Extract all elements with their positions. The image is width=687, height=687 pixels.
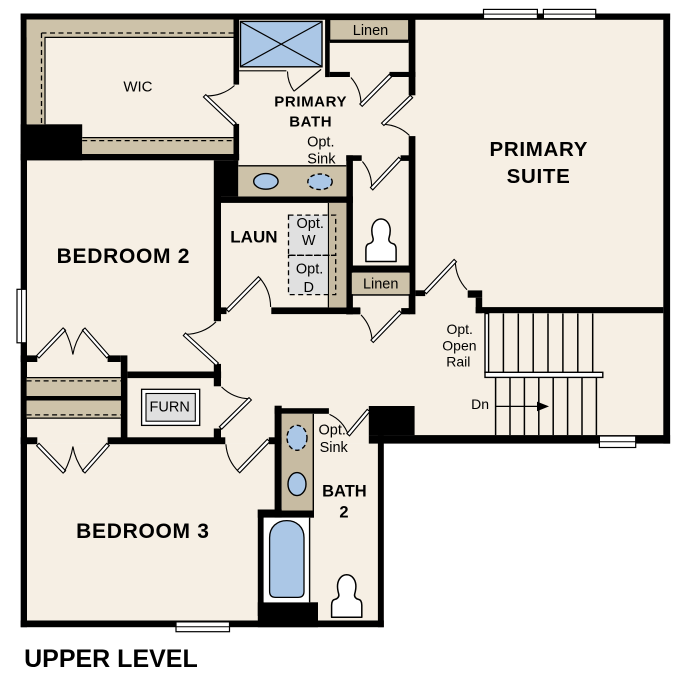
svg-text:WIC: WIC: [123, 78, 152, 95]
svg-text:LAUN: LAUN: [230, 228, 277, 247]
svg-text:Sink: Sink: [320, 440, 349, 456]
svg-text:SUITE: SUITE: [507, 165, 571, 188]
svg-text:W: W: [302, 233, 316, 249]
svg-text:Opt.: Opt.: [307, 134, 334, 150]
svg-text:PRIMARY: PRIMARY: [489, 138, 588, 161]
svg-text:BATH: BATH: [322, 483, 367, 501]
svg-text:2: 2: [339, 504, 348, 522]
svg-text:Opt.: Opt.: [296, 216, 323, 232]
svg-text:Linen: Linen: [363, 277, 398, 293]
svg-text:BEDROOM 3: BEDROOM 3: [76, 520, 209, 543]
svg-text:Rail: Rail: [446, 354, 470, 370]
svg-text:BATH: BATH: [289, 114, 332, 131]
svg-text:Sink: Sink: [307, 152, 336, 168]
svg-text:Opt.: Opt.: [296, 262, 323, 278]
svg-text:Open: Open: [442, 338, 476, 354]
svg-text:D: D: [303, 280, 313, 296]
svg-text:Linen: Linen: [353, 23, 388, 39]
svg-text:FURN: FURN: [150, 399, 190, 415]
svg-text:BEDROOM 2: BEDROOM 2: [57, 245, 190, 268]
svg-text:Dn: Dn: [471, 396, 489, 412]
svg-text:PRIMARY: PRIMARY: [274, 94, 347, 111]
svg-text:Opt.: Opt.: [318, 423, 345, 439]
svg-text:Opt.: Opt.: [446, 321, 472, 337]
svg-text:UPPER LEVEL: UPPER LEVEL: [24, 645, 198, 673]
